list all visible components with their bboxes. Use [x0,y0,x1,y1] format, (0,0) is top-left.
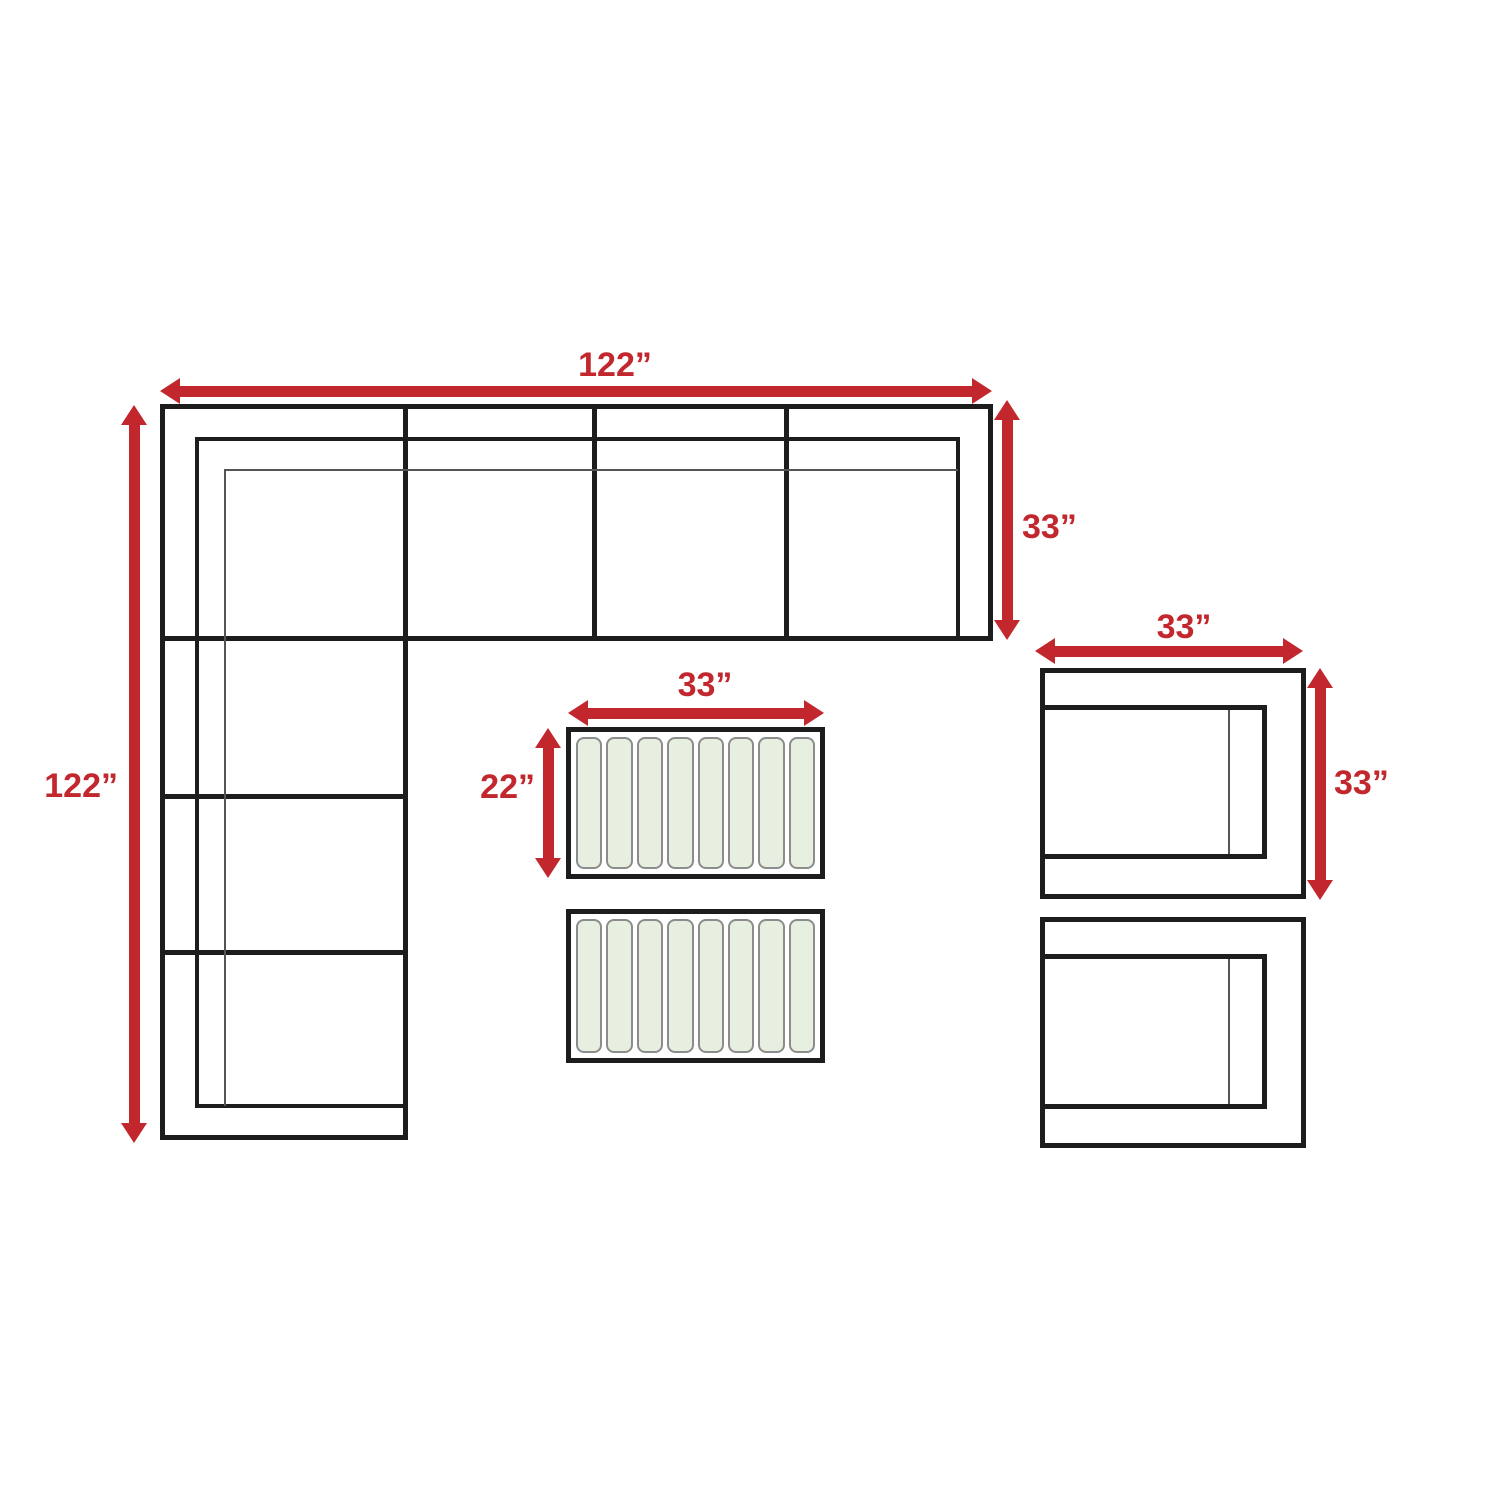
dim-arrow-coffee-table-depth [543,748,554,858]
table-slat [758,737,784,869]
dim-label-coffee-table-depth: 22” [455,770,535,804]
dim-arrow-coffee-table-width [588,708,804,719]
table-slat [576,919,602,1053]
sofa-backrest-line-bottom-end [195,1104,408,1108]
table-slat [698,919,724,1053]
furniture-dimension-diagram: 122” 122” 33” 33” 33” 33” 22” [0,0,1500,1500]
table-slat [728,919,754,1053]
dim-label-chair-depth: 33” [1334,766,1389,800]
chair-2-cushion-line [1228,959,1230,1104]
chair-1-cushion-line [1228,710,1230,854]
dim-label-coffee-table-width: 33” [645,668,765,702]
sofa-backrest-line-top [195,437,960,441]
dim-arrow-sectional-length [129,425,140,1123]
table-slat [667,919,693,1053]
sofa-cushion-line-left [224,469,226,1106]
dim-arrow-chair-width [1055,646,1283,657]
coffee-table-1 [566,727,825,879]
table-slat [789,919,815,1053]
table-slat [698,737,724,869]
table-slat [576,737,602,869]
dim-arrow-sectional-width [180,386,972,397]
table-slat [667,737,693,869]
chair-1-seat [1040,705,1267,859]
table-slat [606,737,632,869]
table-slat [789,737,815,869]
table-slat [728,737,754,869]
dim-label-sectional-length: 122” [28,769,118,803]
chair-2-seat [1040,954,1267,1109]
dim-label-chair-width: 33” [1124,610,1244,644]
table-slat [637,737,663,869]
sofa-backrest-line-left [195,437,199,1108]
sofa-cushion-line-top [224,469,958,471]
table-slat [758,919,784,1053]
dim-arrow-chair-depth [1315,688,1326,880]
sofa-backrest-line-right-end [956,437,960,641]
table-slat [606,919,632,1053]
coffee-table-2-slats [576,919,815,1053]
coffee-table-2 [566,909,825,1063]
coffee-table-1-slats [576,737,815,869]
dim-label-sectional-depth: 33” [1022,510,1077,544]
dim-label-sectional-width: 122” [535,348,695,382]
table-slat [637,919,663,1053]
dim-arrow-sectional-depth [1002,420,1013,620]
